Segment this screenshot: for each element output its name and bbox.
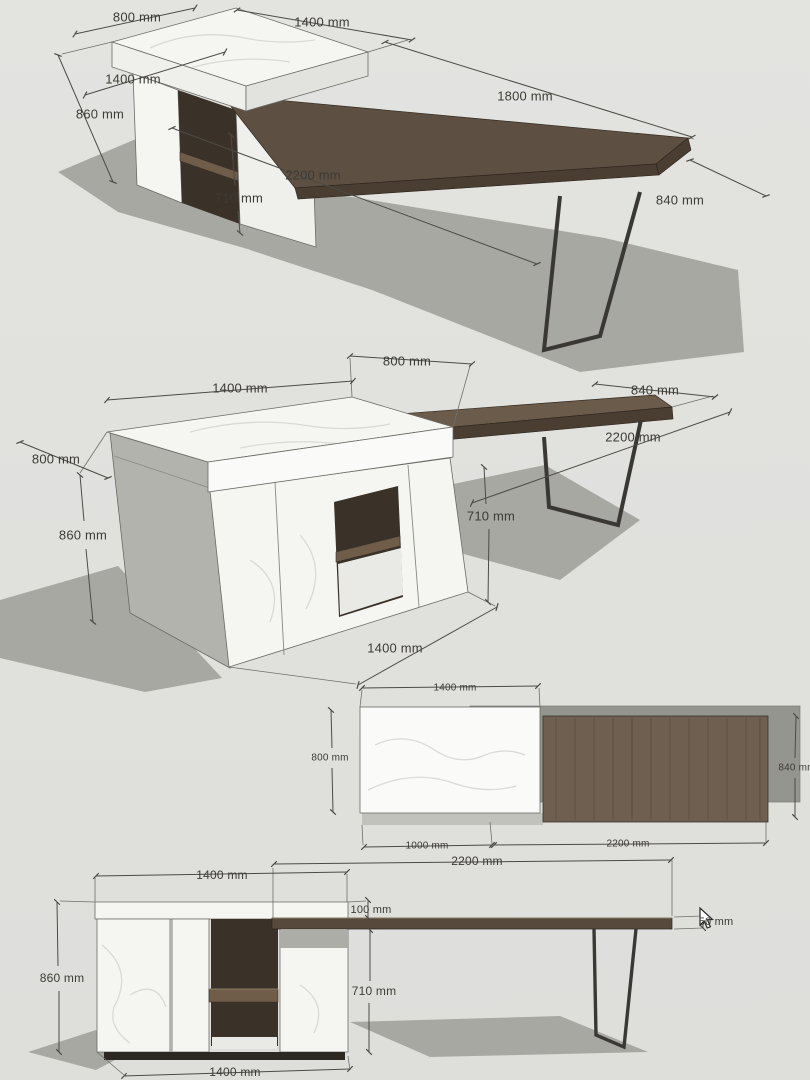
- plinth: [104, 1052, 345, 1060]
- extension-line: [80, 432, 107, 473]
- table-top-side: [272, 918, 672, 929]
- dim-label-width-top: 1400 mm: [196, 868, 247, 882]
- extension-line: [229, 667, 356, 684]
- floor-shadow: [250, 188, 744, 372]
- dim-label-depth-top: 800 mm: [113, 10, 161, 25]
- cabinet-top-plan: [360, 707, 540, 813]
- dim-label-width-front: 1400 mm: [105, 72, 161, 87]
- table-top-plan: [543, 716, 768, 822]
- dim-label-height: 860 mm: [59, 528, 107, 543]
- extension-line: [490, 822, 492, 844]
- dim-label-clearance: 710 mm: [215, 191, 263, 206]
- dim-label-depth-top: 800 mm: [383, 354, 431, 369]
- cabinet-open-shelf: [211, 919, 278, 1046]
- extension-line: [348, 901, 366, 902]
- dim-label-height: 860 mm: [76, 107, 124, 122]
- table-leg-frame: [594, 929, 636, 1047]
- dim-label-top-thickness: 50 mm: [699, 916, 734, 928]
- dim-label-table-depth: 840 mm: [656, 193, 704, 208]
- extension-line: [672, 396, 713, 407]
- cabinet-second-panel: [172, 919, 209, 1052]
- shelf-sill: [212, 1037, 277, 1049]
- view-elevation: [28, 858, 713, 1076]
- dim-label-width-top: 1400 mm: [212, 381, 268, 396]
- diagram-canvas: [0, 0, 810, 1080]
- dim-label-table-depth: 840 mm: [631, 383, 679, 398]
- extension-line: [350, 358, 352, 397]
- dim-label-width-bottom: 1400 mm: [209, 1065, 260, 1079]
- dim-label-depth-left: 800 mm: [32, 452, 80, 467]
- dim-label-clearance: 710 mm: [352, 984, 397, 998]
- extension-line: [348, 1056, 350, 1070]
- dim-line-840: [690, 160, 766, 196]
- cabinet-left-door: [97, 919, 170, 1052]
- extension-line: [674, 928, 703, 929]
- dim-label-table-length: 2200 mm: [605, 430, 661, 445]
- dim-label-width-top: 1400 mm: [294, 15, 350, 30]
- view-isometric-back: [0, 356, 730, 692]
- view-plan: [331, 686, 800, 847]
- extension-line: [688, 138, 694, 139]
- dim-label-width-bottom: 1400 mm: [367, 641, 423, 656]
- dim-label-table-length: 2200 mm: [285, 168, 341, 183]
- cabinet-top-slab: [95, 902, 348, 919]
- dim-label-table-inset: 1000 mm: [405, 841, 448, 852]
- dim-label-height: 860 mm: [40, 971, 85, 985]
- extension-line: [360, 690, 362, 707]
- dim-label-table-depth: 840 mm: [778, 763, 810, 774]
- extension-line: [468, 592, 495, 606]
- cabinet-shadow-strip: [362, 813, 543, 825]
- extension-line: [60, 901, 95, 902]
- shelf-board: [209, 989, 278, 1002]
- extension-line: [368, 40, 408, 52]
- dim-label-cabinet-depth: 800 mm: [311, 753, 348, 764]
- dim-label-top-gap: 100 mm: [351, 904, 392, 916]
- dim-line-860: [57, 902, 58, 966]
- cabinet-left-door: [133, 73, 182, 203]
- extension-line: [362, 825, 363, 845]
- dim-label-clearance: 710 mm: [467, 509, 515, 524]
- view-isometric-front: [58, 8, 766, 372]
- furniture-dimension-diagram: 800 mm 1400 mm 1400 mm 860 mm 1800 mm 22…: [0, 0, 810, 1080]
- dim-line-800: [331, 710, 332, 748]
- extension-line: [539, 688, 540, 707]
- dim-line-860: [80, 475, 84, 521]
- dim-label-cabinet-width: 1400 mm: [433, 683, 476, 694]
- table-shadow-on-panel: [280, 930, 348, 948]
- dim-label-table-length: 2200 mm: [451, 854, 502, 868]
- dim-line-800: [332, 768, 333, 812]
- extension-line: [62, 42, 112, 54]
- dim-label-overhang: 1800 mm: [497, 89, 553, 104]
- dim-label-table-length: 2200 mm: [606, 839, 649, 850]
